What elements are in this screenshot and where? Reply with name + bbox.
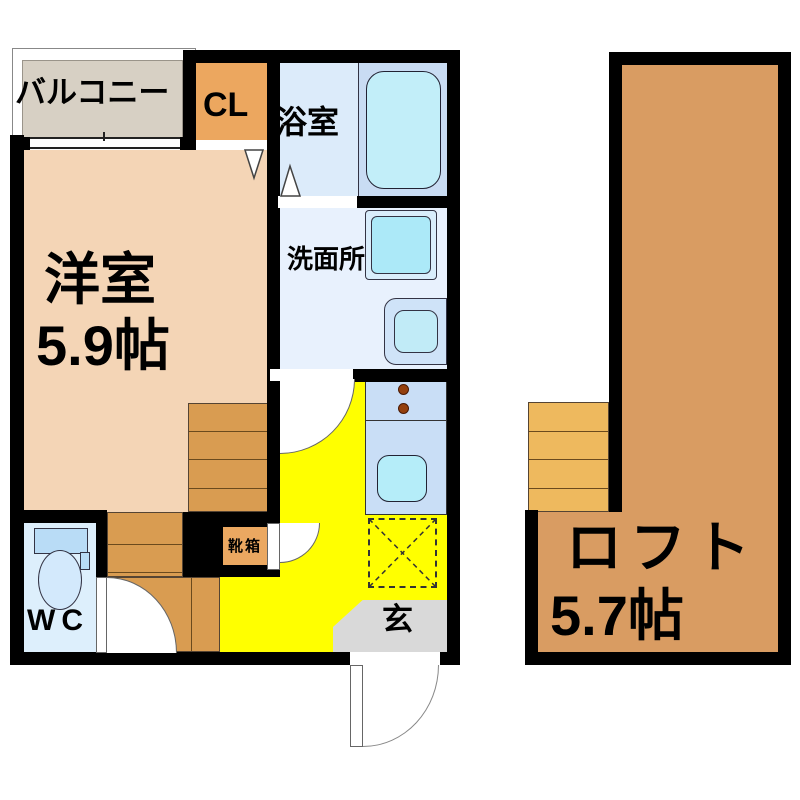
wall bbox=[525, 652, 791, 665]
wall bbox=[10, 137, 30, 150]
wall bbox=[353, 369, 447, 382]
washer bbox=[371, 216, 431, 274]
closet-label: CL bbox=[203, 88, 248, 122]
wall bbox=[357, 196, 447, 208]
loft-size: 5.7帖 bbox=[550, 588, 684, 644]
wall bbox=[18, 510, 107, 523]
wall bbox=[778, 52, 791, 665]
western-room-label: 洋室 bbox=[44, 252, 156, 308]
counter-divider bbox=[366, 420, 446, 421]
wall bbox=[180, 137, 196, 150]
floor-plan: 靴箱 バルコニー CL 浴室 洗面所 洋室 5.9帖 WC 玄 ロフト 5.7帖 bbox=[0, 0, 800, 800]
wall bbox=[10, 652, 350, 665]
shoe-box-label: 靴箱 bbox=[228, 539, 262, 554]
toilet-flush-knob bbox=[80, 552, 90, 570]
shoe-box: 靴箱 bbox=[223, 527, 267, 565]
wall bbox=[609, 52, 791, 65]
stairs-hall bbox=[107, 512, 183, 577]
entrance-opening bbox=[350, 652, 440, 665]
wall bbox=[267, 570, 280, 577]
fridge-space bbox=[368, 518, 437, 588]
balcony-label: バルコニー bbox=[15, 77, 169, 108]
window bbox=[30, 137, 180, 149]
wall bbox=[96, 523, 107, 577]
entrance-door-leaf bbox=[350, 665, 363, 747]
loft-floor-upper bbox=[622, 65, 778, 512]
stove-burner-1 bbox=[398, 384, 409, 395]
toilet-bowl bbox=[38, 550, 82, 610]
loft-label: ロフト bbox=[566, 520, 758, 576]
window-tick bbox=[103, 132, 105, 141]
wall bbox=[183, 50, 196, 140]
hall-door-leaf bbox=[267, 523, 280, 570]
wall bbox=[609, 52, 622, 512]
western-room-size: 5.9帖 bbox=[36, 318, 170, 374]
vanity-bowl bbox=[394, 310, 438, 353]
wc-label: WC bbox=[27, 606, 89, 636]
kitchen-hall-floor-ext bbox=[220, 577, 280, 652]
wc-door-leaf bbox=[96, 577, 107, 653]
stairs-upper bbox=[188, 403, 268, 512]
washroom-label: 洗面所 bbox=[287, 246, 365, 272]
kitchen-sink bbox=[377, 455, 427, 502]
bathtub bbox=[366, 71, 441, 189]
entrance-door-swing bbox=[363, 665, 439, 747]
wall bbox=[525, 510, 538, 665]
wall bbox=[10, 135, 24, 665]
wall bbox=[447, 50, 460, 665]
bathroom-door-opening bbox=[278, 196, 357, 208]
closet-door-opening bbox=[196, 140, 267, 150]
stove-burner-2 bbox=[398, 403, 409, 414]
entrance-label: 玄 bbox=[382, 604, 413, 635]
bathroom-label: 浴室 bbox=[275, 106, 339, 138]
loft-stairs bbox=[528, 402, 609, 512]
wall bbox=[183, 50, 460, 63]
